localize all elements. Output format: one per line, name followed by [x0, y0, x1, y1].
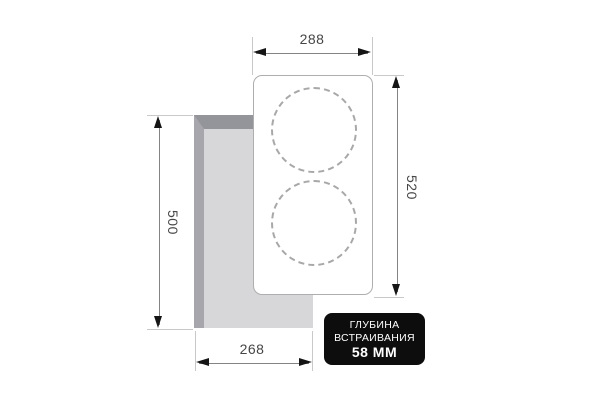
dim-label-hob-width: 288	[287, 31, 337, 47]
hob-installation-diagram: 288 520 500 268 ГЛУБИНА ВСТРАИВАНИЯ	[0, 0, 600, 420]
extension-line	[252, 37, 253, 75]
extension-line	[374, 75, 404, 76]
arrowhead-down-icon	[154, 316, 162, 328]
extension-line	[374, 297, 404, 298]
dim-label-cutout-width: 268	[227, 341, 277, 357]
extension-line	[312, 331, 313, 371]
depth-badge: ГЛУБИНА ВСТРАИВАНИЯ 58 ММ	[324, 313, 425, 365]
badge-line2: ВСТРАИВАНИЯ	[334, 332, 415, 344]
arrowhead-up-icon	[392, 76, 400, 88]
arrowhead-right-icon	[299, 358, 312, 366]
arrowhead-right-icon	[358, 48, 371, 56]
dimension-line	[397, 80, 398, 292]
extension-line	[147, 329, 193, 330]
dimension-line	[159, 120, 160, 325]
hob-panel	[253, 75, 373, 295]
dim-label-hob-height: 520	[402, 160, 420, 215]
extension-line	[147, 115, 193, 116]
burner-circle-bottom	[271, 180, 357, 266]
arrowhead-down-icon	[392, 284, 400, 296]
extension-line	[195, 331, 196, 371]
arrowhead-left-icon	[253, 48, 266, 56]
dimension-line	[256, 53, 368, 54]
arrowhead-left-icon	[196, 358, 209, 366]
arrowhead-up-icon	[154, 116, 162, 128]
dim-label-cutout-height: 500	[163, 195, 181, 250]
extension-line	[372, 37, 373, 75]
burner-circle-top	[271, 87, 357, 173]
badge-line3: 58 ММ	[352, 345, 397, 360]
badge-line1: ГЛУБИНА	[350, 319, 400, 331]
dimension-line	[199, 363, 309, 364]
